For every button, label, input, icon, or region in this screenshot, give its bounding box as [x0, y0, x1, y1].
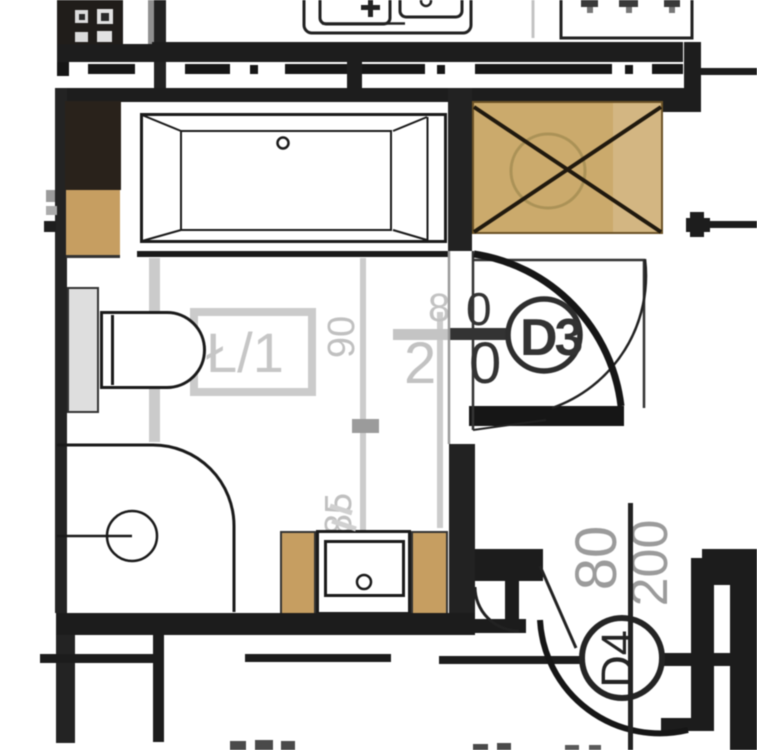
svg-text:D4: D4 [592, 630, 643, 688]
svg-text:D3: D3 [520, 309, 583, 367]
